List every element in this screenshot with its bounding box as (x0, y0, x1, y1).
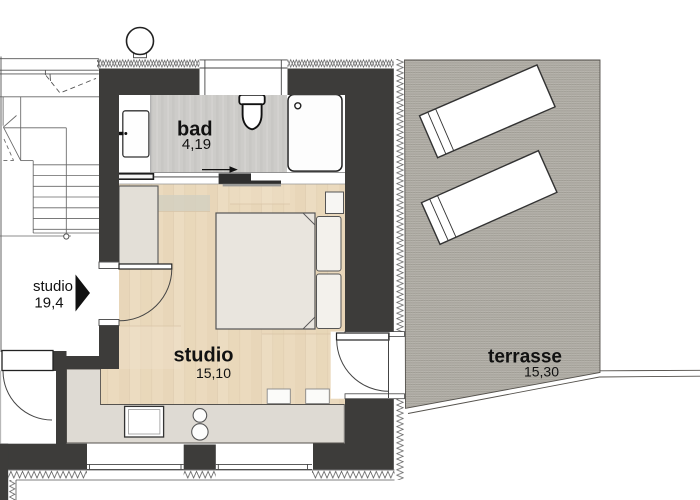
svg-text:4,19: 4,19 (182, 136, 211, 153)
svg-text:15,10: 15,10 (196, 365, 231, 381)
svg-text:studio: studio (174, 345, 234, 367)
svg-text:15,30: 15,30 (524, 364, 559, 380)
svg-text:19,4: 19,4 (34, 294, 63, 311)
svg-text:studio: studio (33, 278, 73, 295)
